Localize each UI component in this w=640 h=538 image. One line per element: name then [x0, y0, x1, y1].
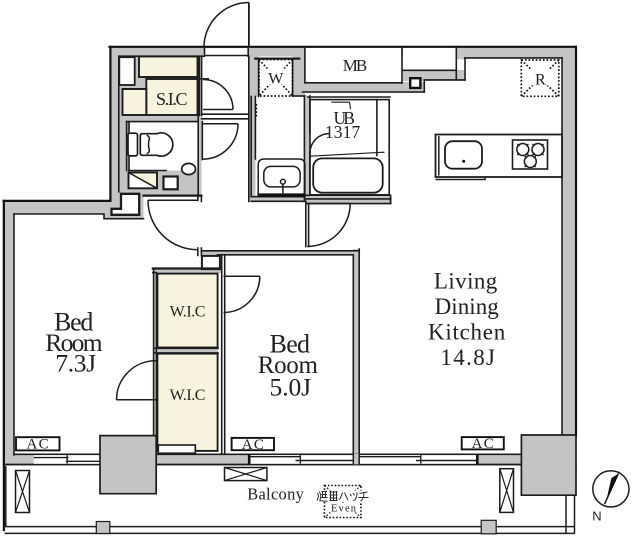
svg-text:Balcony: Balcony	[247, 484, 304, 503]
svg-text:S.I.C: S.I.C	[156, 89, 188, 109]
svg-text:5.0J: 5.0J	[270, 372, 312, 401]
svg-text:Living: Living	[434, 269, 498, 294]
svg-text:14.8J: 14.8J	[440, 345, 495, 370]
svg-text:Dining: Dining	[435, 294, 500, 319]
svg-text:MB: MB	[343, 56, 368, 75]
svg-text:N: N	[592, 508, 601, 523]
svg-text:R: R	[535, 71, 546, 88]
svg-text:Kitchen: Kitchen	[428, 319, 506, 344]
svg-text:1317: 1317	[325, 122, 361, 142]
svg-text:7.3J: 7.3J	[55, 348, 96, 377]
svg-text:W.I.C: W.I.C	[170, 387, 206, 404]
svg-text:W: W	[268, 70, 284, 87]
svg-text:W.I.C: W.I.C	[170, 304, 206, 321]
